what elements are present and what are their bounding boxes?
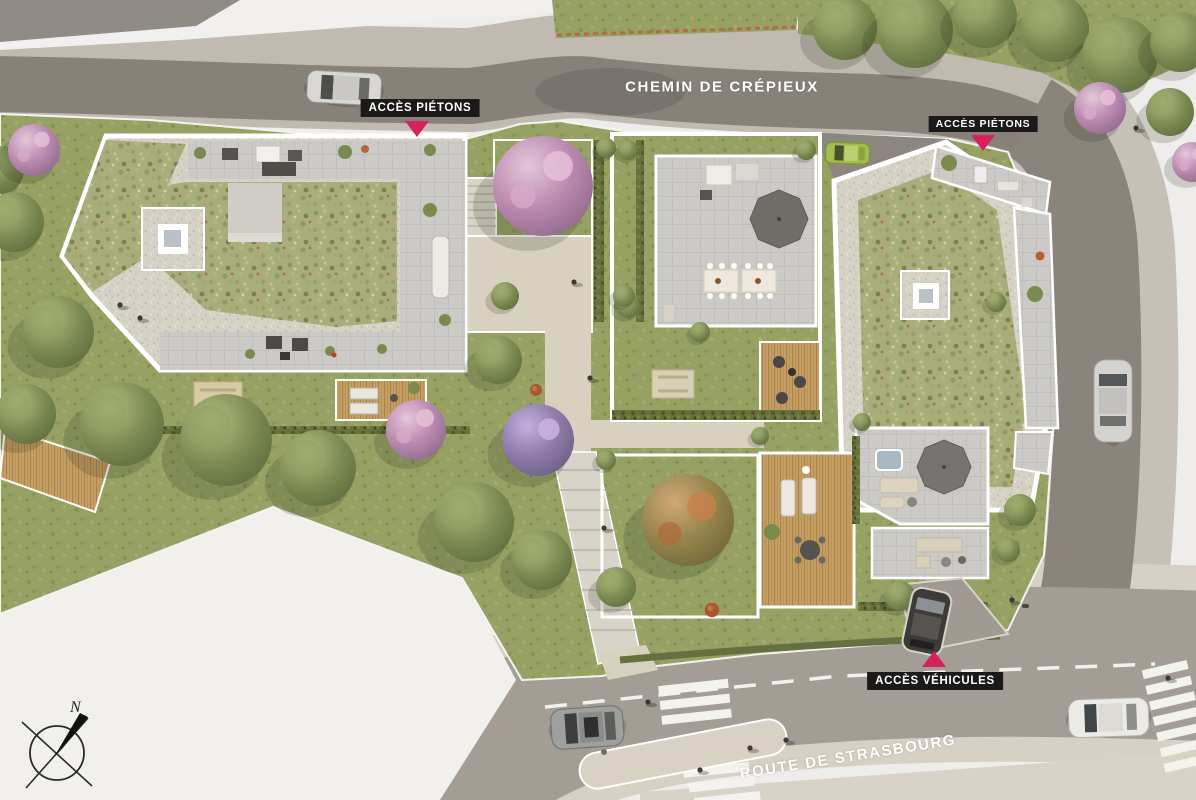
hedge-deck-east (852, 436, 860, 524)
roof-patio-steps (228, 233, 282, 242)
compass-north-label: N (69, 699, 82, 716)
car-silver-east (1094, 360, 1132, 446)
deck-middle (760, 342, 820, 412)
car-green (825, 142, 870, 165)
hedge-middle-south (612, 410, 820, 420)
roof-patio (228, 183, 282, 233)
island-sign (601, 749, 607, 755)
terrace-southeast (1014, 432, 1052, 474)
site-plan: N CHEMIN DE CRÉPIEUX ROUTE DE STRASBOURG… (0, 0, 1196, 800)
hedge-walkway-west (594, 140, 604, 322)
terrace-lounge (872, 528, 988, 578)
picnic-table-middle (652, 370, 694, 398)
site-plan-drawing: N (0, 0, 1196, 800)
skylight-west (142, 208, 204, 270)
car-white-south (1065, 697, 1152, 739)
car-gray-south (547, 705, 628, 751)
path-east-west (588, 420, 764, 448)
skylight-east (901, 271, 949, 319)
deck-south (760, 453, 854, 607)
hedge-walkway-east (636, 140, 644, 322)
jacuzzi (876, 450, 902, 470)
